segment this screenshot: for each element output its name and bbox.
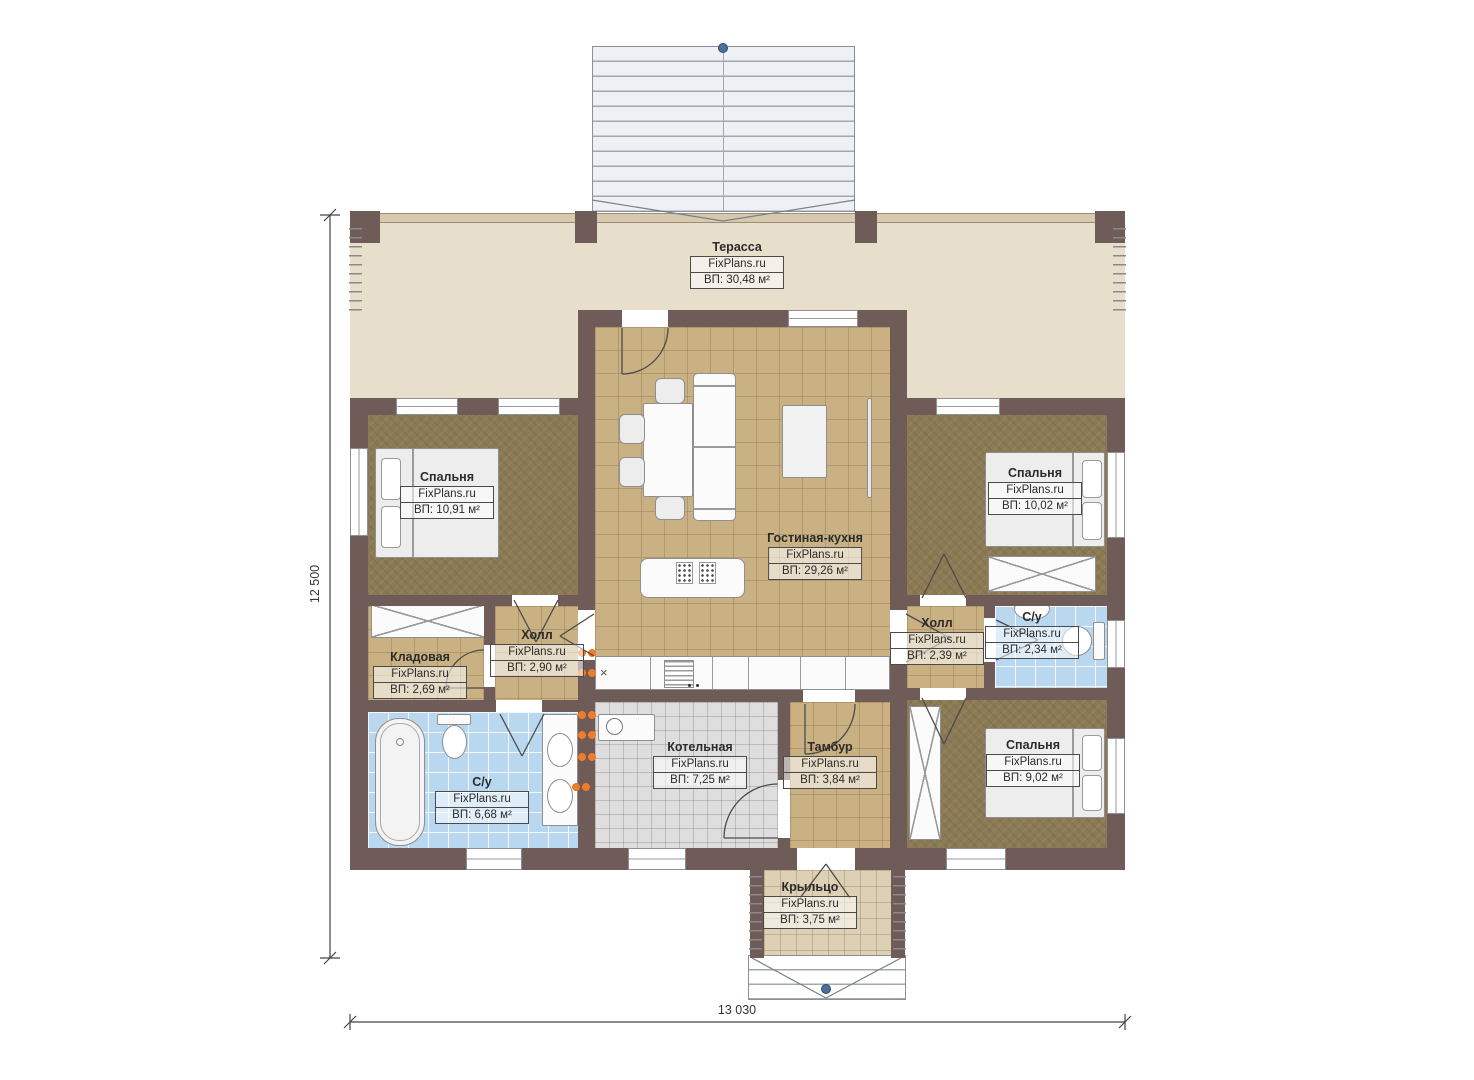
label-living-kitchen: Гостиная-кухня FixPlans.ru ВП: 29,26 м² xyxy=(767,531,863,580)
dim-tick xyxy=(324,209,336,964)
label-vestibule: Тамбур FixPlans.ru ВП: 3,84 м² xyxy=(783,740,877,789)
label-bedroom-top-right: Спальня FixPlans.ru ВП: 10,02 м² xyxy=(988,466,1082,515)
room-name: Тамбур xyxy=(807,740,852,754)
sink-cross-icon: × xyxy=(600,666,608,679)
room-site: FixPlans.ru xyxy=(890,632,984,649)
pillow-symbol xyxy=(1082,775,1102,811)
room-name: Кладовая xyxy=(390,650,450,664)
toilet-tank-symbol xyxy=(437,714,471,725)
door-opening xyxy=(803,690,855,702)
room-area: ВП: 3,84 м² xyxy=(783,772,877,789)
room-area: ВП: 10,91 м² xyxy=(400,502,494,519)
label-hall-right: Холл FixPlans.ru ВП: 2,39 м² xyxy=(890,616,984,665)
sofa-back-line xyxy=(694,508,735,510)
room-area: ВП: 2,69 м² xyxy=(373,682,467,699)
pillow-symbol xyxy=(381,506,401,548)
label-boiler: Котельная FixPlans.ru ВП: 7,25 м² xyxy=(653,740,747,789)
window xyxy=(396,398,458,415)
stove-burners-icon xyxy=(699,562,716,584)
label-bedroom-bottom-right: Спальня FixPlans.ru ВП: 9,02 м² xyxy=(986,738,1080,787)
chair-symbol xyxy=(655,496,685,520)
room-name: С/у xyxy=(1022,610,1041,624)
window xyxy=(936,398,1000,415)
window xyxy=(1107,452,1125,538)
radiator-symbol xyxy=(577,752,597,762)
stairs-top-marker xyxy=(718,43,728,53)
toilet-tank-symbol xyxy=(1093,622,1105,660)
room-site: FixPlans.ru xyxy=(373,666,467,683)
kitchen-cabinet-divider xyxy=(845,657,846,689)
appliance-dot xyxy=(696,684,699,687)
dimension-height: 12 500 xyxy=(308,554,322,614)
radiator-symbol xyxy=(577,730,597,740)
room-area: ВП: 3,75 м² xyxy=(763,912,857,929)
terrace-post xyxy=(575,211,597,243)
room-site: FixPlans.ru xyxy=(653,756,747,773)
porch-railing-hatch xyxy=(893,876,906,950)
room-name: Котельная xyxy=(667,740,732,754)
room-area: ВП: 29,26 м² xyxy=(768,563,862,580)
window xyxy=(498,398,560,415)
room-name: Спальня xyxy=(420,470,474,484)
room-site: FixPlans.ru xyxy=(490,644,584,661)
porch-marker xyxy=(821,984,831,994)
room-area: ВП: 7,25 м² xyxy=(653,772,747,789)
pillow-symbol xyxy=(1082,502,1102,540)
radiator-symbol xyxy=(571,782,591,792)
room-site: FixPlans.ru xyxy=(985,626,1079,643)
terrace-edge xyxy=(350,213,1125,223)
room-name: Крыльцо xyxy=(782,880,839,894)
door-opening xyxy=(496,700,542,712)
floor-plan: × xyxy=(0,0,1474,1080)
window xyxy=(1107,620,1125,668)
door-opening xyxy=(622,310,668,327)
room-site: FixPlans.ru xyxy=(988,482,1082,499)
label-bathroom-right: С/у FixPlans.ru ВП: 2,34 м² xyxy=(985,610,1079,659)
room-site: FixPlans.ru xyxy=(986,754,1080,771)
window xyxy=(350,448,368,536)
room-name: Холл xyxy=(921,616,952,630)
window xyxy=(628,848,686,870)
label-terrace: Терасса FixPlans.ru ВП: 30,48 м² xyxy=(690,240,784,289)
radiator-symbol xyxy=(577,710,597,720)
room-site: FixPlans.ru xyxy=(763,896,857,913)
room-area: ВП: 2,34 м² xyxy=(985,642,1079,659)
room-site: FixPlans.ru xyxy=(435,791,529,808)
boiler-sink xyxy=(606,718,623,735)
room-site: FixPlans.ru xyxy=(783,756,877,773)
label-bathroom-left: С/у FixPlans.ru ВП: 6,68 м² xyxy=(435,775,529,824)
wall xyxy=(890,310,907,848)
room-area: ВП: 2,90 м² xyxy=(490,660,584,677)
room-name: С/у xyxy=(472,775,491,789)
wall xyxy=(890,398,1125,415)
chair-symbol xyxy=(619,457,645,487)
window xyxy=(1107,738,1125,814)
sink-symbol xyxy=(547,779,573,813)
label-storage: Кладовая FixPlans.ru ВП: 2,69 м² xyxy=(373,650,467,699)
chair-symbol xyxy=(655,378,685,404)
bathtub-drain xyxy=(396,738,404,746)
sofa-cushion-line xyxy=(694,446,735,448)
window xyxy=(788,310,858,327)
radiator-panel xyxy=(867,398,872,498)
room-area: ВП: 9,02 м² xyxy=(986,770,1080,787)
terrace-railing-hatch xyxy=(349,228,362,314)
label-hall-left: Холл FixPlans.ru ВП: 2,90 м² xyxy=(490,628,584,677)
door-opening xyxy=(920,595,966,606)
porch-railing-hatch xyxy=(749,876,762,950)
room-living-kitchen xyxy=(595,327,890,690)
sofa-back-line xyxy=(694,385,735,387)
room-area: ВП: 6,68 м² xyxy=(435,807,529,824)
room-site: FixPlans.ru xyxy=(690,256,784,273)
pillow-symbol xyxy=(381,458,401,500)
dim-tick xyxy=(344,1016,1131,1028)
terrace-stairs xyxy=(592,46,855,212)
dining-table-symbol xyxy=(643,403,693,497)
label-porch: Крыльцо FixPlans.ru ВП: 3,75 м² xyxy=(763,880,857,929)
room-site: FixPlans.ru xyxy=(400,486,494,503)
room-area: ВП: 2,39 м² xyxy=(890,648,984,665)
stove-burners-icon xyxy=(676,562,693,584)
terrace-post xyxy=(855,211,877,243)
kitchen-cabinet-divider xyxy=(712,657,713,689)
toilet-bowl-symbol xyxy=(442,725,467,759)
terrace-railing-hatch xyxy=(1113,228,1126,314)
room-name: Гостиная-кухня xyxy=(767,531,863,545)
wall xyxy=(350,595,595,606)
kitchen-cabinet-divider xyxy=(650,657,651,689)
dimension-width: 13 030 xyxy=(697,1003,777,1017)
room-name: Спальня xyxy=(1008,466,1062,480)
sink-symbol xyxy=(547,733,573,767)
wardrobe-symbol xyxy=(371,604,485,638)
coffee-table-symbol xyxy=(782,405,827,478)
wardrobe-symbol xyxy=(988,556,1096,592)
room-name: Спальня xyxy=(1006,738,1060,752)
wall xyxy=(578,310,595,848)
dim-line-left xyxy=(320,215,340,958)
wardrobe-symbol xyxy=(909,706,941,840)
kitchen-cabinet-divider xyxy=(800,657,801,689)
room-area: ВП: 10,02 м² xyxy=(988,498,1082,515)
door-opening xyxy=(797,848,855,870)
window xyxy=(466,848,522,870)
label-bedroom-left: Спальня FixPlans.ru ВП: 10,91 м² xyxy=(400,470,494,519)
room-area: ВП: 30,48 м² xyxy=(690,272,784,289)
room-site: FixPlans.ru xyxy=(768,547,862,564)
door-opening xyxy=(512,595,558,606)
room-name: Холл xyxy=(521,628,552,642)
wall xyxy=(350,700,595,712)
room-name: Терасса xyxy=(712,240,762,254)
pillow-symbol xyxy=(1082,735,1102,771)
kitchen-cabinet-divider xyxy=(748,657,749,689)
door-opening xyxy=(920,688,966,700)
appliance-dot xyxy=(688,684,691,687)
window xyxy=(946,848,1006,870)
chair-symbol xyxy=(619,414,645,444)
pillow-symbol xyxy=(1082,460,1102,498)
